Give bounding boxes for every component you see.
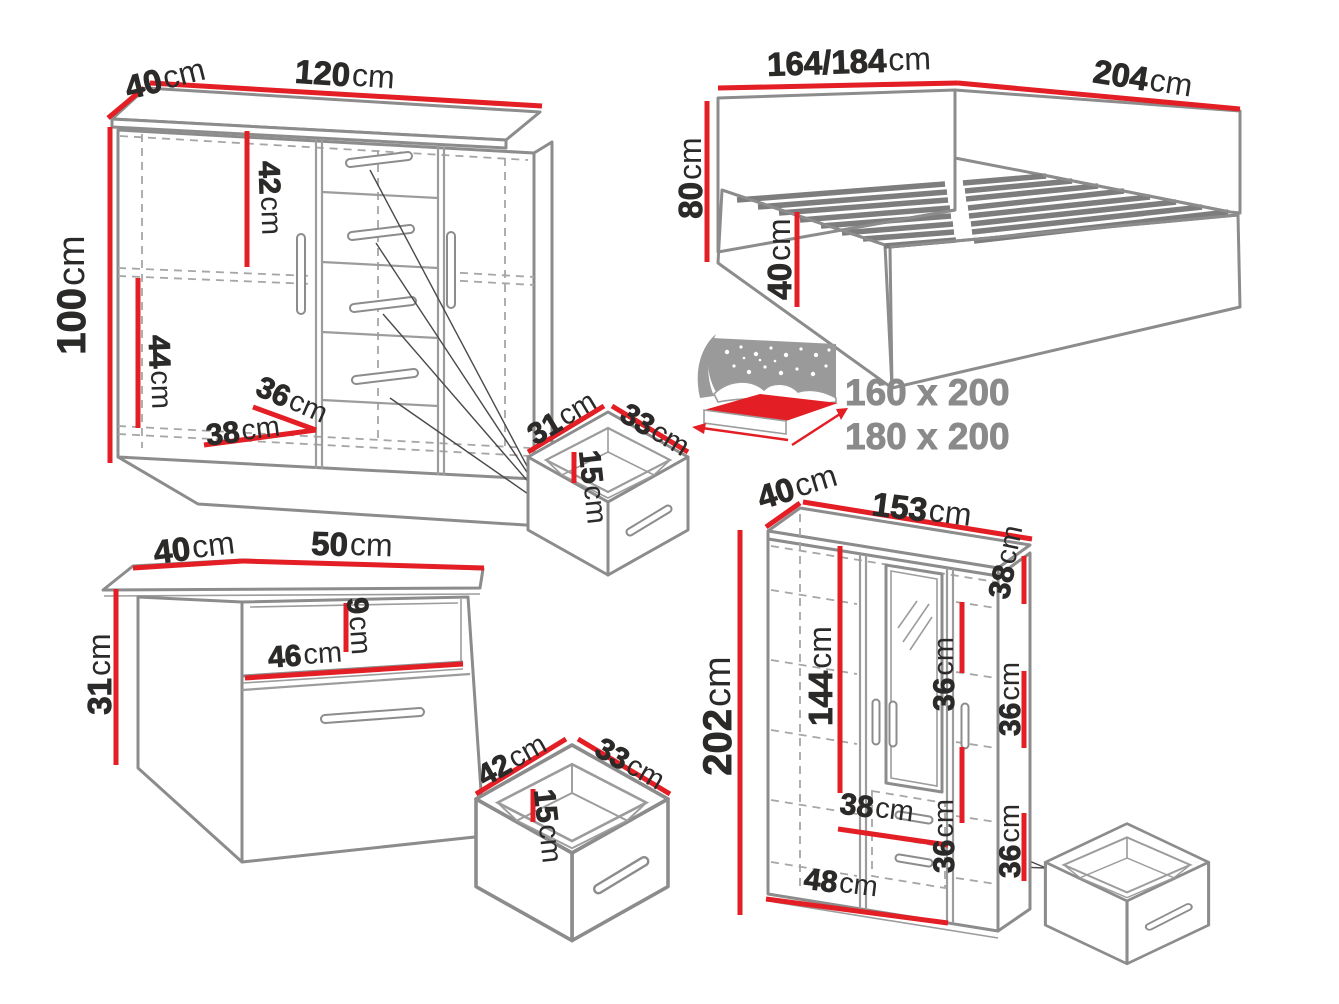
wardrobe-right-shelf-a-label: 36cm xyxy=(994,662,1027,736)
wardrobe-mid-shelf-a-label: 36cm xyxy=(928,637,961,711)
dresser-illustration xyxy=(108,83,556,527)
bed-headboard-height-label: 80cm xyxy=(672,137,709,218)
wardrobe-hanging-height-label: 144cm xyxy=(802,626,839,726)
wardrobe-height-label: 202cm xyxy=(696,656,740,775)
nightstand-height-label: 31cm xyxy=(81,633,118,714)
wardrobe-drawer-illustration xyxy=(1045,824,1208,964)
mattress-size-180x200: 180 x 200 xyxy=(845,416,1010,457)
nightstand-illustration xyxy=(103,560,484,862)
wardrobe-mid-shelf-b-label: 36cm xyxy=(928,799,961,873)
bed-base-height-label: 40cm xyxy=(761,218,798,299)
dresser-front xyxy=(118,130,534,479)
furniture-dimensions-diagram: 160 x 200 180 x 200 xyxy=(0,0,1339,1004)
nightstand-niche-height-label: 9cm xyxy=(341,596,378,656)
nightstand-inner-width-label: 46cm xyxy=(267,636,343,674)
diagram-canvas: 160 x 200 180 x 200 xyxy=(0,0,1339,1004)
nightstand-side xyxy=(138,597,242,862)
length-arrow xyxy=(792,414,840,445)
bed-width-label: 164/184cm xyxy=(766,40,931,83)
dresser-lower-section-label: 44cm xyxy=(142,334,178,409)
dresser-upper-section-label: 42cm xyxy=(252,160,288,235)
dresser-height-label: 100cm xyxy=(50,235,94,354)
mattress-size-160x200: 160 x 200 xyxy=(845,372,1010,413)
wardrobe-right-shelf-b-label: 36cm xyxy=(994,804,1027,878)
dresser-width-label: 120cm xyxy=(294,52,396,96)
nightstand-width-label: 50cm xyxy=(311,524,394,564)
mattress-size-icon xyxy=(692,334,848,445)
